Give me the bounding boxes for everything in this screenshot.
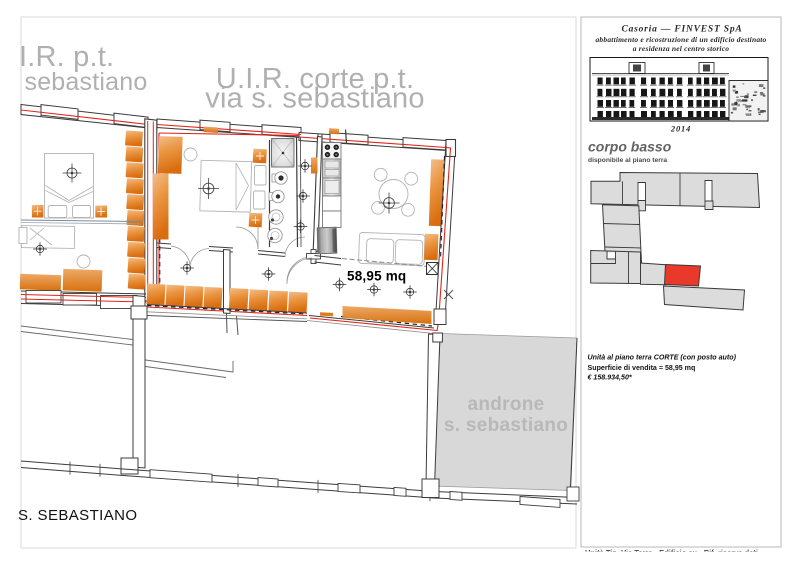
svg-text:androne: androne (467, 394, 544, 415)
svg-text:Superficie di vendita = 58,95: Superficie di vendita = 58,95 mq (588, 364, 696, 372)
svg-text:2014: 2014 (670, 124, 691, 134)
svg-text:a residenza nel centro storico: a residenza nel centro storico (633, 44, 729, 53)
svg-text:S. SEBASTIANO: S. SEBASTIANO (18, 507, 137, 524)
svg-text:58,95 mq: 58,95 mq (347, 269, 406, 284)
svg-text:disponibile al piano terra: disponibile al piano terra (588, 157, 667, 164)
svg-text:abbattimento e ricostruzione d: abbattimento e ricostruzione di un edifi… (595, 35, 766, 44)
svg-text:via s. sebastiano: via s. sebastiano (205, 83, 424, 115)
svg-text:corpo basso: corpo basso (588, 139, 672, 155)
svg-text:€ 158.934,50*: € 158.934,50* (588, 374, 633, 382)
svg-text:s. sebastiano: s. sebastiano (444, 415, 568, 436)
svg-text:Casoria — FINVEST SpA: Casoria — FINVEST SpA (621, 25, 742, 35)
svg-text:sebastiano: sebastiano (25, 68, 148, 96)
svg-text:Unità al piano terra CORTE (co: Unità al piano terra CORTE (con posto au… (588, 354, 737, 362)
